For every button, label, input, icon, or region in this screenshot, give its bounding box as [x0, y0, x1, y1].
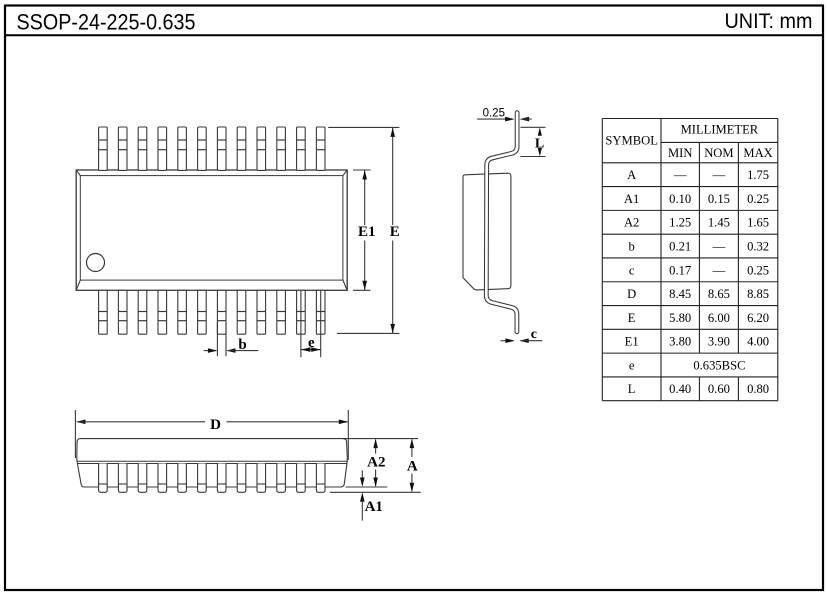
svg-text:—: — — [673, 168, 687, 182]
svg-text:—: — — [712, 239, 726, 253]
svg-text:0.60: 0.60 — [708, 382, 730, 396]
svg-text:0.25: 0.25 — [747, 192, 769, 206]
svg-text:0.17: 0.17 — [669, 263, 691, 277]
svg-text:SSOP-24-225-0.635: SSOP-24-225-0.635 — [17, 9, 196, 34]
svg-text:8.45: 8.45 — [669, 287, 691, 301]
svg-text:A1: A1 — [624, 192, 639, 206]
svg-text:c: c — [629, 263, 635, 277]
svg-text:1.75: 1.75 — [747, 168, 769, 182]
svg-text:5.80: 5.80 — [669, 311, 691, 325]
svg-text:0.25: 0.25 — [483, 108, 505, 120]
svg-text:D: D — [627, 287, 636, 301]
svg-text:1.45: 1.45 — [708, 216, 730, 230]
svg-text:1.65: 1.65 — [747, 216, 769, 230]
svg-text:SYMBOL: SYMBOL — [605, 133, 657, 147]
svg-text:—: — — [712, 263, 726, 277]
svg-text:UNIT: mm: UNIT: mm — [725, 10, 813, 33]
svg-text:1.25: 1.25 — [669, 216, 691, 230]
svg-text:e: e — [629, 358, 635, 372]
svg-text:MAX: MAX — [743, 146, 772, 160]
svg-text:D: D — [210, 417, 221, 433]
svg-text:A2: A2 — [624, 216, 639, 230]
svg-text:MILLIMETER: MILLIMETER — [681, 123, 759, 137]
svg-text:0.40: 0.40 — [669, 382, 691, 396]
svg-text:0.80: 0.80 — [747, 382, 769, 396]
svg-text:L: L — [535, 137, 544, 152]
svg-text:0.15: 0.15 — [708, 192, 730, 206]
svg-text:E: E — [390, 224, 400, 240]
svg-text:6.00: 6.00 — [708, 311, 730, 325]
svg-text:c: c — [531, 327, 537, 342]
svg-text:e: e — [308, 335, 315, 351]
svg-text:—: — — [712, 168, 726, 182]
svg-text:E1: E1 — [625, 335, 639, 349]
svg-text:NOM: NOM — [704, 146, 733, 160]
svg-text:A1: A1 — [365, 499, 383, 515]
svg-text:4.00: 4.00 — [747, 335, 769, 349]
svg-text:0.10: 0.10 — [669, 192, 691, 206]
svg-text:0.21: 0.21 — [669, 239, 691, 253]
svg-text:0.635BSC: 0.635BSC — [693, 358, 745, 372]
svg-text:0.32: 0.32 — [747, 239, 769, 253]
svg-text:8.85: 8.85 — [747, 287, 769, 301]
svg-text:3.80: 3.80 — [669, 335, 691, 349]
svg-text:8.65: 8.65 — [708, 287, 730, 301]
svg-text:A: A — [407, 458, 418, 474]
svg-text:0.25: 0.25 — [747, 263, 769, 277]
svg-text:E1: E1 — [358, 224, 376, 240]
svg-text:b: b — [238, 337, 246, 353]
svg-text:3.90: 3.90 — [708, 335, 730, 349]
svg-text:MIN: MIN — [668, 146, 693, 160]
svg-text:6.20: 6.20 — [747, 311, 769, 325]
svg-text:A: A — [627, 168, 636, 182]
svg-text:A2: A2 — [367, 455, 385, 471]
svg-text:E: E — [628, 311, 636, 325]
svg-text:b: b — [629, 239, 635, 253]
svg-text:L: L — [628, 382, 636, 396]
